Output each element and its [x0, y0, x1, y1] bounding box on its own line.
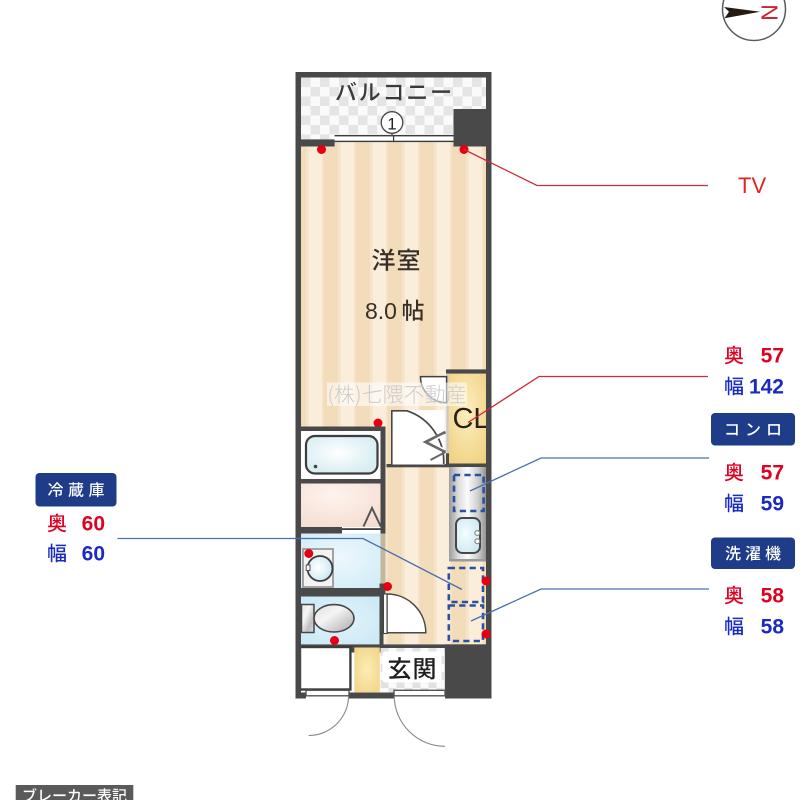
- svg-text:59: 59: [761, 493, 784, 516]
- svg-text:60: 60: [82, 513, 105, 536]
- svg-text:N: N: [757, 4, 783, 21]
- svg-text:57: 57: [761, 345, 784, 368]
- svg-text:60: 60: [82, 543, 105, 566]
- svg-text:58: 58: [761, 585, 785, 608]
- svg-text:142: 142: [749, 376, 784, 399]
- svg-text:CL: CL: [452, 403, 489, 435]
- svg-text:8.0: 8.0: [365, 298, 397, 324]
- svg-text:TV: TV: [738, 173, 766, 198]
- svg-text:57: 57: [761, 462, 784, 485]
- svg-text:1: 1: [387, 115, 396, 134]
- svg-text:58: 58: [761, 616, 785, 639]
